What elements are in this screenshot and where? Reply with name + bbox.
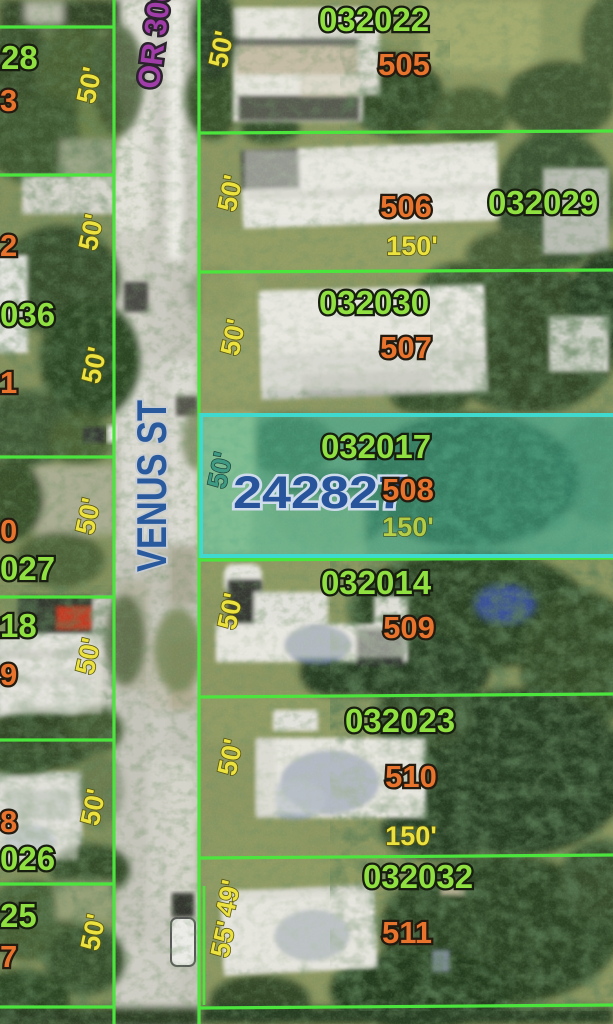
- svg-text:150': 150': [382, 512, 433, 542]
- svg-text:508: 508: [382, 472, 434, 507]
- svg-text:027: 027: [0, 550, 55, 587]
- svg-text:032017: 032017: [321, 428, 431, 465]
- svg-text:150': 150': [386, 231, 437, 261]
- svg-text:036: 036: [0, 296, 55, 333]
- svg-text:032023: 032023: [345, 702, 455, 739]
- svg-text:032014: 032014: [321, 564, 432, 601]
- svg-text:506: 506: [380, 189, 432, 224]
- svg-text:18: 18: [0, 607, 37, 644]
- svg-text:1: 1: [0, 365, 17, 400]
- svg-text:VENUS ST: VENUS ST: [128, 400, 175, 572]
- svg-text:509: 509: [383, 610, 435, 645]
- svg-text:511: 511: [382, 915, 432, 950]
- svg-text:032029: 032029: [488, 184, 598, 221]
- svg-text:9: 9: [0, 657, 17, 692]
- svg-text:242827: 242827: [233, 467, 407, 518]
- svg-text:507: 507: [380, 330, 432, 365]
- svg-text:505: 505: [378, 47, 430, 82]
- svg-text:3: 3: [0, 83, 17, 118]
- svg-text:25: 25: [0, 897, 37, 934]
- svg-text:150': 150': [385, 821, 436, 851]
- svg-text:510: 510: [385, 759, 437, 794]
- svg-text:032030: 032030: [319, 284, 429, 321]
- svg-text:2: 2: [0, 228, 17, 263]
- svg-text:7: 7: [0, 939, 17, 974]
- svg-text:032032: 032032: [363, 858, 473, 895]
- svg-text:28: 28: [1, 39, 38, 76]
- svg-text:026: 026: [0, 840, 55, 877]
- svg-text:8: 8: [0, 804, 17, 839]
- svg-text:0: 0: [0, 513, 17, 548]
- svg-text:032022: 032022: [319, 1, 429, 38]
